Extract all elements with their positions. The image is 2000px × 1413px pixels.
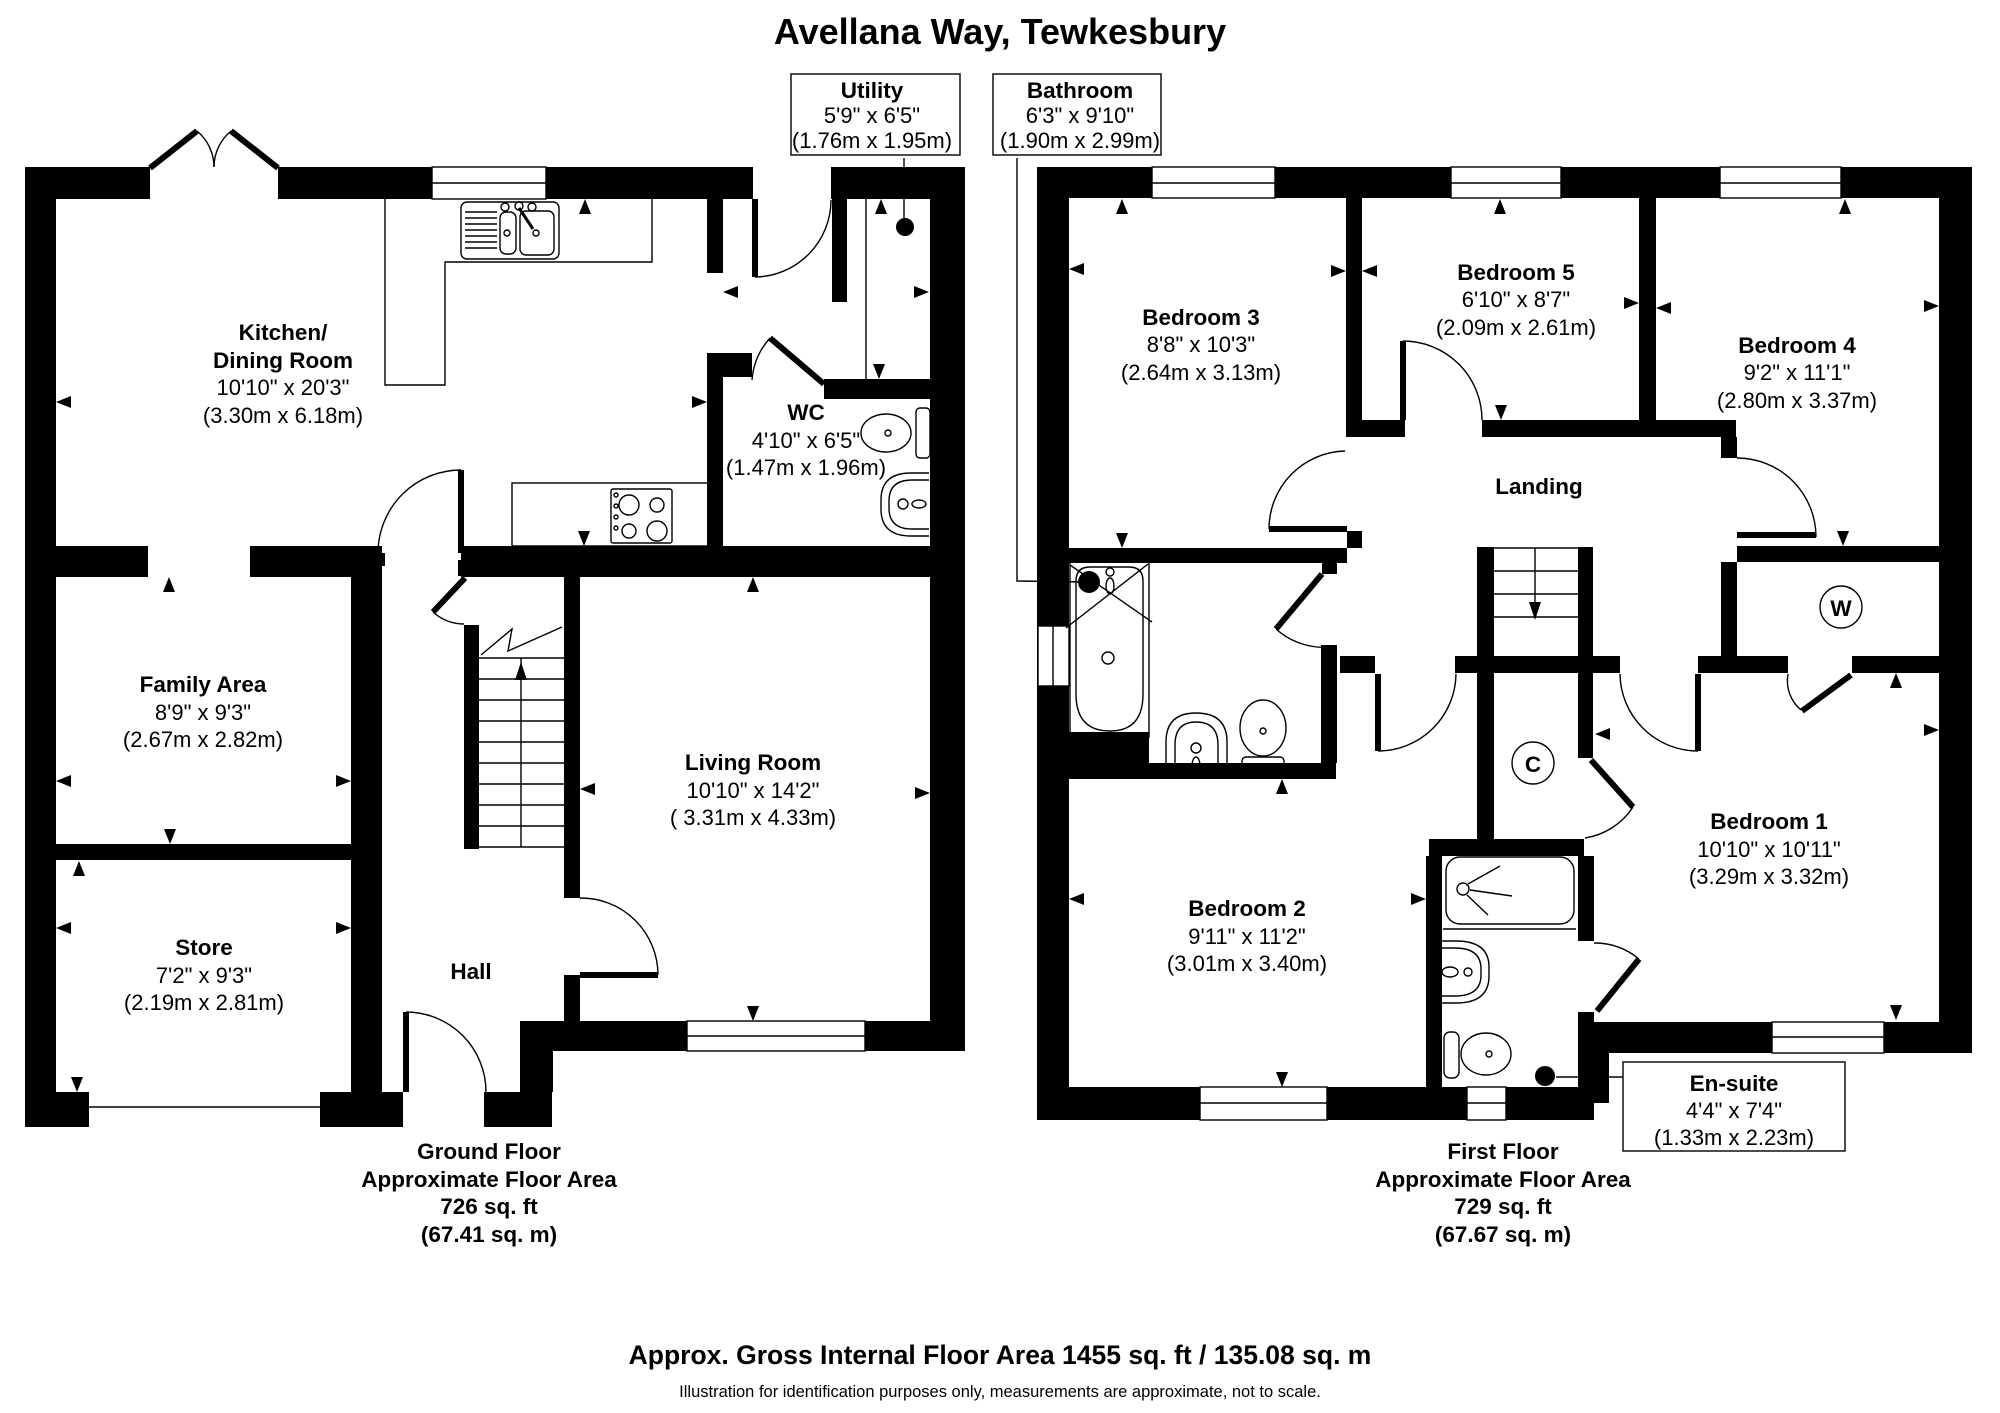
svg-text:Approximate Floor Area: Approximate Floor Area bbox=[1375, 1167, 1631, 1192]
svg-text:(67.67 sq. m): (67.67 sq. m) bbox=[1435, 1222, 1571, 1247]
svg-text:729 sq. ft: 729 sq. ft bbox=[1454, 1194, 1552, 1219]
svg-text:(2.67m x 2.82m): (2.67m x 2.82m) bbox=[123, 727, 283, 752]
svg-text:8'8" x 10'3": 8'8" x 10'3" bbox=[1147, 332, 1255, 357]
svg-text:(2.64m x 3.13m): (2.64m x 3.13m) bbox=[1121, 360, 1281, 385]
svg-text:W: W bbox=[1830, 596, 1852, 621]
svg-text:(2.80m x 3.37m): (2.80m x 3.37m) bbox=[1717, 388, 1877, 413]
svg-text:(67.41 sq. m): (67.41 sq. m) bbox=[421, 1222, 557, 1247]
svg-text:9'2" x 11'1": 9'2" x 11'1" bbox=[1744, 360, 1851, 385]
svg-text:(1.33m x 2.23m): (1.33m x 2.23m) bbox=[1654, 1125, 1814, 1150]
svg-text:WC: WC bbox=[787, 400, 825, 425]
svg-text:Avellana Way, Tewkesbury: Avellana Way, Tewkesbury bbox=[774, 11, 1226, 52]
svg-text:(1.47m x 1.96m): (1.47m x 1.96m) bbox=[726, 455, 886, 480]
svg-text:(2.19m x 2.81m): (2.19m x 2.81m) bbox=[124, 990, 284, 1015]
svg-text:Living Room: Living Room bbox=[685, 750, 821, 775]
svg-text:6'10" x 8'7": 6'10" x 8'7" bbox=[1462, 287, 1570, 312]
svg-text:7'2" x 9'3": 7'2" x 9'3" bbox=[156, 963, 252, 988]
svg-text:(3.30m x 6.18m): (3.30m x 6.18m) bbox=[203, 403, 363, 428]
svg-text:8'9" x 9'3": 8'9" x 9'3" bbox=[155, 700, 251, 725]
svg-text:Bedroom 2: Bedroom 2 bbox=[1188, 896, 1306, 921]
svg-text:726 sq. ft: 726 sq. ft bbox=[440, 1194, 538, 1219]
svg-text:Landing: Landing bbox=[1495, 474, 1582, 499]
svg-text:5'9" x 6'5": 5'9" x 6'5" bbox=[824, 103, 920, 128]
svg-text:Approx. Gross Internal Floor A: Approx. Gross Internal Floor Area 1455 s… bbox=[629, 1340, 1372, 1370]
svg-text:En-suite: En-suite bbox=[1690, 1071, 1779, 1096]
svg-text:Ground Floor: Ground Floor bbox=[417, 1139, 561, 1164]
svg-text:( 3.31m x 4.33m): ( 3.31m x 4.33m) bbox=[670, 805, 836, 830]
svg-text:Family Area: Family Area bbox=[140, 672, 267, 697]
svg-text:Bedroom 1: Bedroom 1 bbox=[1710, 809, 1828, 834]
svg-text:9'11" x 11'2": 9'11" x 11'2" bbox=[1188, 924, 1305, 949]
svg-text:Dining Room: Dining Room bbox=[213, 348, 353, 373]
svg-text:10'10" x 10'11": 10'10" x 10'11" bbox=[1697, 837, 1841, 862]
svg-text:Bathroom: Bathroom bbox=[1027, 78, 1133, 103]
svg-text:Approximate Floor Area: Approximate Floor Area bbox=[361, 1167, 617, 1192]
svg-text:Hall: Hall bbox=[450, 959, 491, 984]
svg-text:(2.09m x 2.61m): (2.09m x 2.61m) bbox=[1436, 315, 1596, 340]
svg-text:10'10" x 20'3": 10'10" x 20'3" bbox=[217, 375, 350, 400]
svg-text:(3.29m x 3.32m): (3.29m x 3.32m) bbox=[1689, 864, 1849, 889]
svg-text:First Floor: First Floor bbox=[1447, 1139, 1558, 1164]
svg-text:6'3" x 9'10": 6'3" x 9'10" bbox=[1026, 103, 1134, 128]
svg-text:Illustration for identificatio: Illustration for identification purposes… bbox=[679, 1383, 1321, 1401]
svg-text:(1.76m x 1.95m): (1.76m x 1.95m) bbox=[792, 128, 952, 153]
svg-text:10'10" x 14'2": 10'10" x 14'2" bbox=[687, 778, 820, 803]
svg-text:Bedroom 5: Bedroom 5 bbox=[1457, 260, 1575, 285]
svg-text:4'4" x 7'4": 4'4" x 7'4" bbox=[1686, 1098, 1782, 1123]
svg-text:Kitchen/: Kitchen/ bbox=[239, 320, 329, 345]
svg-text:Utility: Utility bbox=[841, 78, 904, 103]
svg-text:(1.90m x 2.99m): (1.90m x 2.99m) bbox=[1000, 128, 1160, 153]
svg-text:(3.01m x 3.40m): (3.01m x 3.40m) bbox=[1167, 951, 1327, 976]
svg-text:4'10" x 6'5": 4'10" x 6'5" bbox=[752, 428, 860, 453]
svg-text:Bedroom 4: Bedroom 4 bbox=[1738, 333, 1856, 358]
svg-text:C: C bbox=[1525, 752, 1541, 777]
svg-text:Store: Store bbox=[175, 935, 233, 960]
svg-text:Bedroom 3: Bedroom 3 bbox=[1142, 305, 1260, 330]
